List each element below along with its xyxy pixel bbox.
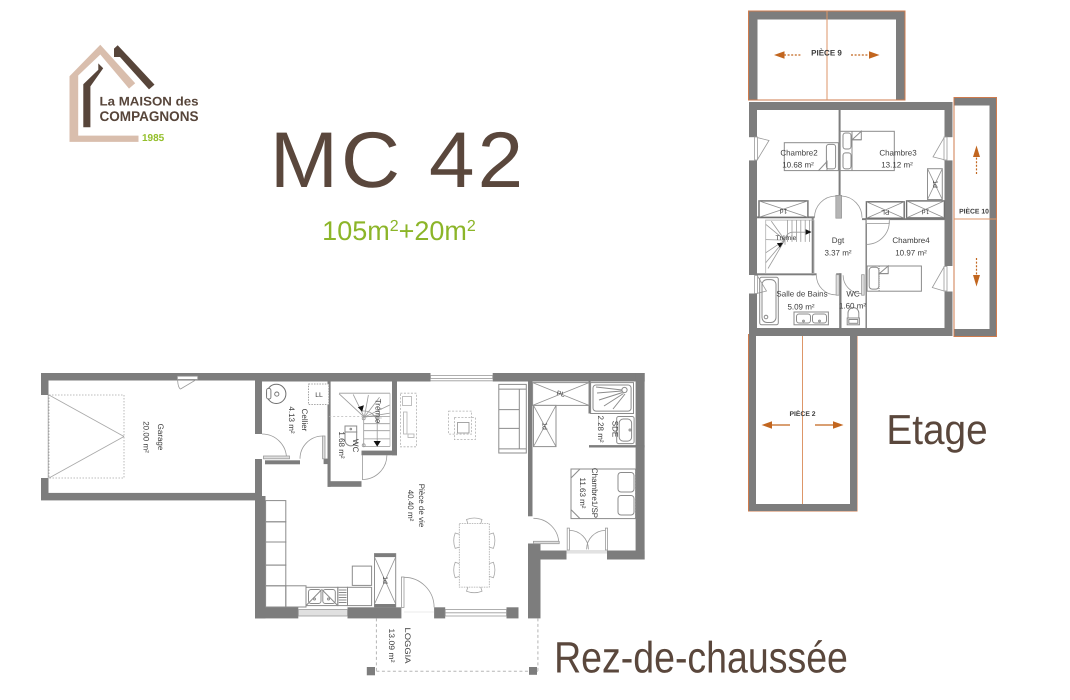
svg-text:Etage: Etage <box>886 406 987 453</box>
svg-text:LOGGIA: LOGGIA <box>403 628 412 665</box>
svg-text:1d: 1d <box>541 422 548 430</box>
svg-text:Dgt: Dgt <box>832 236 845 245</box>
svg-text:1.60 m²: 1.60 m² <box>839 302 866 311</box>
svg-text:LL: LL <box>315 392 323 399</box>
svg-text:MC 42: MC 42 <box>270 115 526 204</box>
svg-text:SDE: SDE <box>610 421 619 437</box>
svg-text:Pièce de vie: Pièce de vie <box>417 484 426 528</box>
svg-text:1.68 m²: 1.68 m² <box>337 431 346 458</box>
svg-text:10.68 m²: 10.68 m² <box>782 161 814 170</box>
svg-text:13.12 m²: 13.12 m² <box>881 161 913 170</box>
svg-text:3.37 m²: 3.37 m² <box>824 249 851 258</box>
svg-text:COMPAGNONS: COMPAGNONS <box>100 108 199 124</box>
svg-text:2.28 m²: 2.28 m² <box>596 415 605 442</box>
svg-text:PL: PL <box>881 208 890 215</box>
svg-text:PIÈCE 10: PIÈCE 10 <box>959 207 989 216</box>
svg-text:4.13 m²: 4.13 m² <box>287 406 296 433</box>
svg-text:105m2+20m2: 105m2+20m2 <box>322 216 476 246</box>
svg-text:Cellier: Cellier <box>300 409 309 432</box>
svg-text:20.00 m²: 20.00 m² <box>142 421 151 453</box>
svg-text:40.40 m²: 40.40 m² <box>406 490 415 522</box>
svg-text:1d: 1d <box>931 180 938 188</box>
svg-text:WC: WC <box>846 290 860 299</box>
svg-text:Chambre2: Chambre2 <box>780 149 818 158</box>
svg-text:Chambre1/SP: Chambre1/SP <box>590 468 599 518</box>
svg-text:5.09 m²: 5.09 m² <box>787 303 814 312</box>
svg-text:1d: 1d <box>381 576 388 584</box>
svg-text:1d: 1d <box>922 208 930 215</box>
svg-text:Salle de Bains: Salle de Bains <box>776 290 827 299</box>
svg-text:Chambre4: Chambre4 <box>892 236 930 245</box>
svg-text:Trémie: Trémie <box>776 235 797 242</box>
svg-text:Rez-de-chaussée: Rez-de-chaussée <box>554 634 848 683</box>
svg-text:WC: WC <box>351 439 360 453</box>
svg-text:11.63 m²: 11.63 m² <box>578 478 587 509</box>
svg-text:Chambre3: Chambre3 <box>879 149 917 158</box>
svg-text:1d: 1d <box>780 207 788 214</box>
svg-text:PIÈCE 2: PIÈCE 2 <box>789 409 815 418</box>
svg-text:La MAISON des: La MAISON des <box>100 95 199 109</box>
svg-text:Garage: Garage <box>156 424 165 451</box>
svg-text:PIÈCE 9: PIÈCE 9 <box>811 48 842 58</box>
svg-text:13.09 m²: 13.09 m² <box>387 629 396 663</box>
svg-text:1985: 1985 <box>142 133 165 144</box>
svg-text:Trémie: Trémie <box>374 399 383 424</box>
svg-text:10.97 m²: 10.97 m² <box>895 249 927 258</box>
